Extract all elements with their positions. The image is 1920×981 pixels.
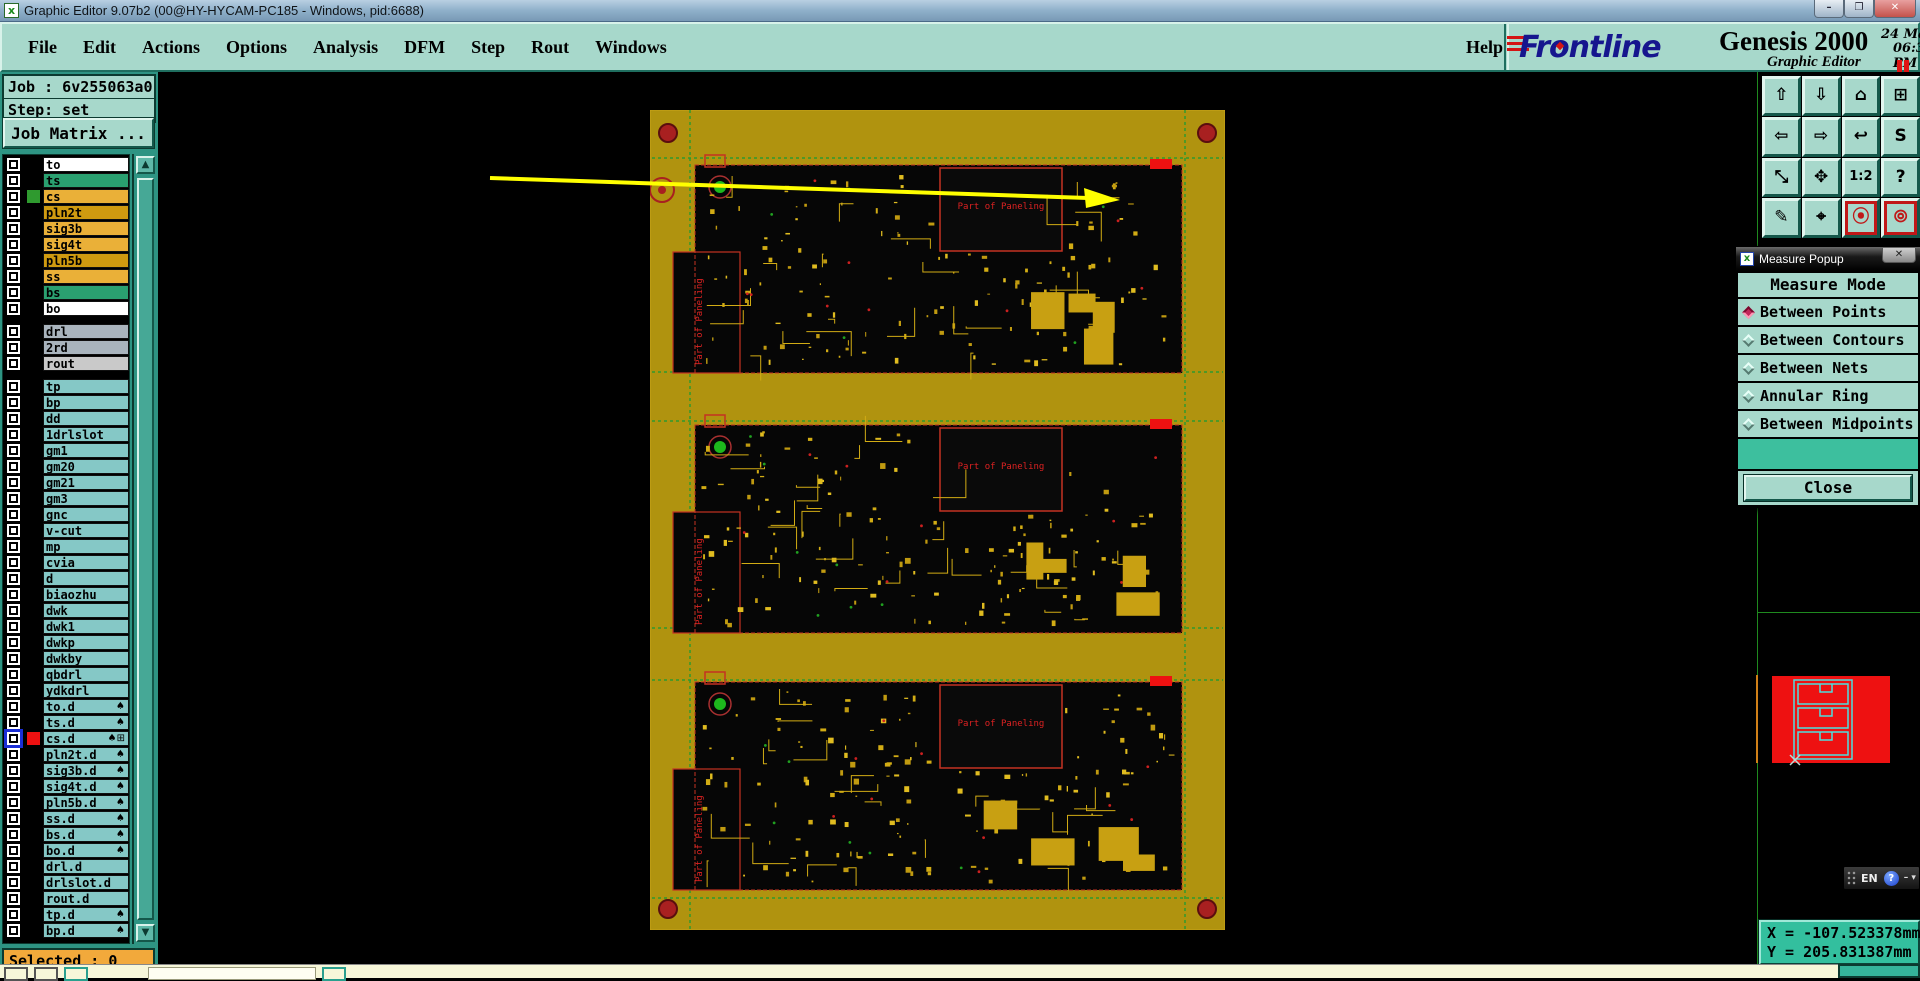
- layer-attr-icons: ♠: [116, 907, 125, 922]
- sidebar: Job : 6v255063a0 Step: set Job Matrix ..…: [0, 72, 158, 978]
- scroll-thumb[interactable]: [137, 178, 154, 920]
- layer-row-dd[interactable]: dd: [5, 411, 129, 427]
- language-label: EN: [1861, 872, 1878, 885]
- layer-row-drl[interactable]: drl: [5, 324, 129, 340]
- layer-name-ts[interactable]: ts: [43, 173, 129, 188]
- zoom-1-2-button[interactable]: 1:2: [1842, 158, 1881, 198]
- layer-row-ydkdrl[interactable]: ydkdrl: [5, 683, 129, 699]
- layer-checkbox[interactable]: [7, 620, 20, 633]
- navigator-border: [1757, 72, 1758, 978]
- pan-up-icon: ⇧: [1774, 85, 1788, 105]
- layer-row-sig4t[interactable]: sig4t: [5, 237, 129, 253]
- zoom-fit-icon: ✥: [1814, 167, 1828, 187]
- layer-name-ydkdrl[interactable]: ydkdrl: [43, 683, 129, 698]
- measure-option-between-midpoints[interactable]: Between Midpoints: [1738, 411, 1918, 439]
- home-view-button[interactable]: ⌂: [1842, 76, 1881, 116]
- layer-checkbox[interactable]: [7, 238, 20, 251]
- measure-mode-options: Between Points Between Contours Between …: [1738, 299, 1918, 439]
- layer-name-gm21[interactable]: gm21: [43, 475, 129, 490]
- job-label: Job : 6v255063a0: [4, 76, 154, 99]
- menu-windows[interactable]: Windows: [595, 37, 667, 58]
- panel-label-vertical: Part of Paneling: [695, 538, 705, 625]
- minimize-lang-icon[interactable]: – ▾: [1904, 874, 1916, 883]
- layer-name-dd[interactable]: dd: [43, 411, 129, 426]
- layer-checkbox[interactable]: [7, 908, 20, 921]
- menu-file[interactable]: File: [28, 37, 57, 58]
- layer-name-drl[interactable]: drl: [43, 324, 129, 339]
- layer-name-biaozhu[interactable]: biaozhu: [43, 587, 129, 602]
- title-bar: x Graphic Editor 9.07b2 (00@HY-HYCAM-PC1…: [0, 0, 1920, 22]
- layer-row-bs.d[interactable]: bs.d ♠: [5, 827, 129, 843]
- layer-row-bo[interactable]: bo: [5, 301, 129, 317]
- layer-checkbox[interactable]: [7, 302, 20, 315]
- zoom-sequence-button[interactable]: S: [1881, 117, 1920, 157]
- radio-diamond-icon[interactable]: [1742, 418, 1755, 431]
- menu-items: File Edit Actions Options Analysis DFM S…: [2, 37, 667, 58]
- layer-row-bp.d[interactable]: bp.d ♠: [5, 923, 129, 939]
- layer-row-mp[interactable]: mp: [5, 539, 129, 555]
- setup-tools-button[interactable]: ✎: [1762, 198, 1801, 238]
- bottom-toolbar: [0, 964, 1838, 978]
- net-compare-icon: ⦾: [1894, 207, 1908, 227]
- layer-row-ts.d[interactable]: ts.d ♠: [5, 715, 129, 731]
- layer-name-d[interactable]: d: [43, 571, 129, 586]
- zoom-fit-button[interactable]: ✥: [1802, 158, 1841, 198]
- setup-tools-icon: ✎: [1774, 207, 1788, 227]
- layer-checkbox[interactable]: [7, 748, 20, 761]
- pan-down-icon: ⇩: [1814, 85, 1828, 105]
- layer-checkbox[interactable]: [7, 396, 20, 409]
- measure-option-annular-ring[interactable]: Annular Ring: [1738, 383, 1918, 411]
- layer-checkbox[interactable]: [7, 357, 20, 370]
- layer-checkbox[interactable]: [7, 556, 20, 569]
- layer-row-sig3b[interactable]: sig3b: [5, 221, 129, 237]
- layer-row-cs.d[interactable]: cs.d ♠⊞: [5, 731, 129, 747]
- coord-x: X = -107.523378mm: [1767, 924, 1918, 943]
- layer-checkbox[interactable]: [7, 796, 20, 809]
- layer-name-tp[interactable]: tp: [43, 379, 129, 394]
- measure-close-button[interactable]: Close: [1744, 475, 1912, 501]
- layer-checkbox[interactable]: [7, 412, 20, 425]
- coord-y: Y = 205.831387mm: [1767, 943, 1918, 962]
- layer-name-v-cut[interactable]: v-cut: [43, 523, 129, 538]
- layer-row-pln2t.d[interactable]: pln2t.d ♠: [5, 747, 129, 763]
- layer-attr-icons: ♠: [116, 763, 125, 778]
- bottom-tool-3[interactable]: [64, 967, 88, 981]
- layer-row-bs[interactable]: bs: [5, 285, 129, 301]
- layer-row-2rd[interactable]: 2rd: [5, 340, 129, 356]
- layer-row-gm20[interactable]: gm20: [5, 459, 129, 475]
- layer-name-dwk1[interactable]: dwk1: [43, 619, 129, 634]
- layer-name-drlslot.d[interactable]: drlslot.d: [43, 875, 129, 890]
- layer-row-gm1[interactable]: gm1: [5, 443, 129, 459]
- layer-row-gnc[interactable]: gnc: [5, 507, 129, 523]
- board-2: Part of PanelingPart of Paneling: [673, 415, 1182, 633]
- layer-row-biaozhu[interactable]: biaozhu: [5, 587, 129, 603]
- measure-probe-icon: ⌖: [1816, 207, 1826, 227]
- panel-label: Part of Paneling: [958, 719, 1045, 729]
- layer-checkbox[interactable]: [7, 812, 20, 825]
- layer-checkbox[interactable]: [7, 460, 20, 473]
- layer-checkbox[interactable]: [7, 325, 20, 338]
- layer-checkbox[interactable]: [7, 604, 20, 617]
- layer-row-rout.d[interactable]: rout.d: [5, 891, 129, 907]
- coordinates-readout: X = -107.523378mm Y = 205.831387mm: [1759, 920, 1920, 965]
- layer-list: to ts cs pln2t sig3b sig4t pln5b: [2, 154, 130, 944]
- layer-name-cvia[interactable]: cvia: [43, 555, 129, 570]
- layer-checkbox[interactable]: [7, 860, 20, 873]
- layer-checkbox[interactable]: [7, 892, 20, 905]
- layer-checkbox[interactable]: [7, 254, 20, 267]
- command-field[interactable]: [148, 967, 316, 980]
- pan-left-button[interactable]: ⇦: [1762, 117, 1801, 157]
- layer-row-tp[interactable]: tp: [5, 379, 129, 395]
- radio-diamond-icon[interactable]: [1742, 390, 1755, 403]
- layer-checkbox[interactable]: [7, 222, 20, 235]
- board-3: Part of PanelingPart of Paneling: [673, 672, 1182, 891]
- layer-name-pln2t[interactable]: pln2t: [43, 205, 129, 220]
- product-name: Genesis 2000: [1719, 26, 1868, 57]
- bottom-tool-4[interactable]: [322, 967, 346, 981]
- layer-row-drl.d[interactable]: drl.d: [5, 859, 129, 875]
- layer-row-ts[interactable]: ts: [5, 173, 129, 189]
- menu-help[interactable]: Help: [1466, 37, 1503, 58]
- layer-row-v-cut[interactable]: v-cut: [5, 523, 129, 539]
- layer-checkbox[interactable]: [7, 684, 20, 697]
- main-canvas[interactable]: Part of PanelingPart of PanelingPart of …: [158, 72, 1758, 964]
- layer-row-ss[interactable]: ss: [5, 269, 129, 285]
- layer-name-bo[interactable]: bo: [43, 301, 129, 316]
- restore-button[interactable]: ❐: [1844, 0, 1874, 18]
- panel-label: Part of Paneling: [958, 462, 1045, 472]
- measure-option-between-points[interactable]: Between Points: [1738, 299, 1918, 327]
- menu-analysis[interactable]: Analysis: [313, 37, 378, 58]
- bottom-tool-1[interactable]: [4, 967, 28, 981]
- language-bar[interactable]: EN ? – ▾: [1843, 866, 1920, 890]
- layer-attr-icons: ♠⊞: [108, 731, 125, 746]
- layer-row-bp[interactable]: bp: [5, 395, 129, 411]
- layer-checkbox[interactable]: [7, 844, 20, 857]
- layer-row-sig4t.d[interactable]: sig4t.d ♠: [5, 779, 129, 795]
- menu-options[interactable]: Options: [226, 37, 287, 58]
- layer-row-to[interactable]: to: [5, 157, 129, 173]
- layer-attr-icons: ♠: [116, 779, 125, 794]
- layer-checkbox[interactable]: [7, 668, 20, 681]
- menu-actions[interactable]: Actions: [142, 37, 200, 58]
- layer-checkbox[interactable]: [7, 652, 20, 665]
- menu-rout[interactable]: Rout: [531, 37, 569, 58]
- scroll-down-icon[interactable]: ▼: [136, 924, 155, 942]
- layer-attr-icons: ♠: [116, 827, 125, 842]
- layer-row-pln5b.d[interactable]: pln5b.d ♠: [5, 795, 129, 811]
- window-xy-icon: ⊞: [1894, 85, 1908, 105]
- zoom-previous-button[interactable]: ↩: [1842, 117, 1881, 157]
- layer-checkbox[interactable]: [7, 508, 20, 521]
- layer-checkbox[interactable]: [7, 174, 20, 187]
- help-tool-button[interactable]: ?: [1881, 158, 1920, 198]
- frontline-logo: Frontline: [1519, 30, 1661, 65]
- layer-row-pln2t[interactable]: pln2t: [5, 205, 129, 221]
- layer-attr-icons: ♠: [116, 795, 125, 810]
- measure-mode-header: Measure Mode: [1738, 273, 1918, 299]
- layer-checkbox[interactable]: [7, 780, 20, 793]
- layer-checkbox[interactable]: [7, 190, 20, 203]
- layer-row-1drlslot[interactable]: 1drlslot: [5, 427, 129, 443]
- layer-checkbox[interactable]: [7, 572, 20, 585]
- zoom-out-icon: ⤡: [1775, 167, 1789, 187]
- layer-checkbox[interactable]: [7, 158, 20, 171]
- zoom-out-button[interactable]: ⤡: [1762, 158, 1801, 198]
- pan-down-button[interactable]: ⇩: [1802, 76, 1841, 116]
- layer-name-1drlslot[interactable]: 1drlslot: [43, 427, 129, 442]
- layer-name-ss[interactable]: ss: [43, 269, 129, 284]
- layer-checkbox[interactable]: [7, 700, 20, 713]
- panel-label-vertical: Part of Paneling: [695, 278, 705, 365]
- layer-checkbox[interactable]: [7, 588, 20, 601]
- layer-name-dwkp[interactable]: dwkp: [43, 635, 129, 650]
- layer-row-rout[interactable]: rout: [5, 356, 129, 372]
- net-highlight-button[interactable]: ⦿: [1842, 198, 1881, 238]
- layer-checkbox[interactable]: [7, 828, 20, 841]
- brand-panel: Frontline Genesis 2000 Graphic Editor 24…: [1509, 24, 1918, 70]
- layer-name-sig4t[interactable]: sig4t: [43, 237, 129, 252]
- app-icon: x: [4, 3, 19, 18]
- layer-row-drlslot.d[interactable]: drlslot.d: [5, 875, 129, 891]
- layer-name-to[interactable]: to: [43, 157, 129, 172]
- layer-name-bp[interactable]: bp: [43, 395, 129, 410]
- layer-row-dwk[interactable]: dwk: [5, 603, 129, 619]
- layer-name-bs[interactable]: bs: [43, 285, 129, 300]
- pan-left-icon: ⇦: [1774, 126, 1788, 146]
- net-highlight-icon: ⦿: [1852, 207, 1869, 227]
- radio-diamond-icon[interactable]: [1742, 306, 1755, 319]
- grip-icon[interactable]: [1847, 871, 1857, 885]
- radio-diamond-icon[interactable]: [1742, 362, 1755, 375]
- layer-row-gm21[interactable]: gm21: [5, 475, 129, 491]
- layer-checkbox[interactable]: [7, 924, 20, 937]
- layer-row-tp.d[interactable]: tp.d ♠: [5, 907, 129, 923]
- layer-checkbox[interactable]: [7, 524, 20, 537]
- menu-dfm[interactable]: DFM: [404, 37, 445, 58]
- layer-row-dwkp[interactable]: dwkp: [5, 635, 129, 651]
- layer-name-drl.d[interactable]: drl.d: [43, 859, 129, 874]
- layer-row-qbdrl[interactable]: qbdrl: [5, 667, 129, 683]
- bottom-tool-2[interactable]: [34, 967, 58, 981]
- window-xy-button[interactable]: ⊞: [1881, 76, 1920, 116]
- measure-popup-filler: [1738, 439, 1918, 471]
- layer-name-gm20[interactable]: gm20: [43, 459, 129, 474]
- layer-name-pln5b[interactable]: pln5b: [43, 253, 129, 268]
- measure-arrow: [488, 172, 1128, 212]
- layer-checkbox[interactable]: [7, 380, 20, 393]
- window-title: Graphic Editor 9.07b2 (00@HY-HYCAM-PC185…: [24, 3, 424, 18]
- job-info-box: Job : 6v255063a0 Step: set: [2, 74, 156, 123]
- radio-diamond-icon[interactable]: [1742, 334, 1755, 347]
- layer-row-dwk1[interactable]: dwk1: [5, 619, 129, 635]
- pause-icon[interactable]: [1897, 57, 1911, 69]
- layer-checkbox[interactable]: [7, 764, 20, 777]
- layer-name-gm3[interactable]: gm3: [43, 491, 129, 506]
- layer-name-sig3b[interactable]: sig3b: [43, 221, 129, 236]
- layer-row-pln5b[interactable]: pln5b: [5, 253, 129, 269]
- pcb-panel: Part of PanelingPart of PanelingPart of …: [650, 110, 1225, 930]
- view-toolbar: ⇧ ⇩ ⌂ ⊞ ⇦ ⇨ ↩ S ⤡ ✥ 1:2 ? ✎ ⌖ ⦿ ⦾: [1762, 76, 1920, 238]
- layer-checkbox[interactable]: [7, 876, 20, 889]
- zoom-sequence-icon: S: [1895, 126, 1907, 146]
- measure-probe-button[interactable]: ⌖: [1802, 198, 1841, 238]
- layer-scrollbar: ▲ ▼: [132, 154, 156, 944]
- pan-right-icon: ⇨: [1814, 126, 1828, 146]
- layer-row-cs[interactable]: cs: [5, 189, 129, 205]
- date-label: 24 May 2021: [1881, 27, 1920, 42]
- layer-attr-icons: ♠: [116, 923, 125, 938]
- layer-checkbox[interactable]: [7, 540, 20, 553]
- help-tool-icon: ?: [1896, 167, 1906, 187]
- layer-row-ss.d[interactable]: ss.d ♠: [5, 811, 129, 827]
- layer-checkbox[interactable]: [7, 286, 20, 299]
- menu-step[interactable]: Step: [471, 37, 505, 58]
- minimize-button[interactable]: –: [1814, 0, 1844, 18]
- layer-row-gm3[interactable]: gm3: [5, 491, 129, 507]
- layer-checkbox[interactable]: [7, 716, 20, 729]
- layer-name-gm1[interactable]: gm1: [43, 443, 129, 458]
- layer-checkbox[interactable]: [7, 492, 20, 505]
- navigator-thumbnail[interactable]: [1758, 660, 1920, 775]
- layer-row-sig3b.d[interactable]: sig3b.d ♠: [5, 763, 129, 779]
- layer-checkbox[interactable]: [7, 444, 20, 457]
- layer-name-2rd[interactable]: 2rd: [43, 340, 129, 355]
- pan-up-button[interactable]: ⇧: [1762, 76, 1801, 116]
- measure-popup-titlebar[interactable]: x Measure Popup ✕: [1736, 247, 1920, 271]
- layer-row-dwkby[interactable]: dwkby: [5, 651, 129, 667]
- layer-attr-icons: ♠: [116, 715, 125, 730]
- layer-checkbox[interactable]: [7, 428, 20, 441]
- layer-checkbox[interactable]: [7, 476, 20, 489]
- zoom-previous-icon: ↩: [1854, 126, 1868, 146]
- menu-bar: File Edit Actions Options Analysis DFM S…: [0, 22, 1920, 72]
- zoom-1-2-icon: 1:2: [1849, 169, 1872, 184]
- help-circle-icon[interactable]: ?: [1884, 871, 1899, 886]
- product-subtitle: Graphic Editor: [1767, 54, 1861, 71]
- layer-color-chip: [27, 190, 40, 203]
- layer-row-d[interactable]: d: [5, 571, 129, 587]
- layer-name-cs[interactable]: cs: [43, 189, 129, 204]
- navigator-divider: [1757, 612, 1920, 613]
- layer-attr-icons: ♠: [116, 699, 125, 714]
- layer-color-chip: [27, 732, 40, 745]
- measure-popup-title: Measure Popup: [1759, 252, 1882, 266]
- layer-name-qbdrl[interactable]: qbdrl: [43, 667, 129, 682]
- layer-checkbox[interactable]: [7, 270, 20, 283]
- menu-edit[interactable]: Edit: [83, 37, 116, 58]
- layer-checkbox[interactable]: [7, 732, 20, 745]
- layer-name-dwk[interactable]: dwk: [43, 603, 129, 618]
- job-matrix-button[interactable]: Job Matrix ...: [3, 118, 154, 148]
- layer-attr-icons: ♠: [116, 747, 125, 762]
- layer-name-gnc[interactable]: gnc: [43, 507, 129, 522]
- bottom-right-panel: [1838, 964, 1920, 978]
- measure-option-between-contours[interactable]: Between Contours: [1738, 327, 1918, 355]
- layer-name-mp[interactable]: mp: [43, 539, 129, 554]
- measure-popup-close-icon[interactable]: ✕: [1882, 248, 1916, 263]
- layer-row-to.d[interactable]: to.d ♠: [5, 699, 129, 715]
- layer-checkbox[interactable]: [7, 341, 20, 354]
- thumbnail-viewport: [1772, 676, 1890, 763]
- layer-row-bo.d[interactable]: bo.d ♠: [5, 843, 129, 859]
- layer-checkbox[interactable]: [7, 206, 20, 219]
- layer-checkbox[interactable]: [7, 636, 20, 649]
- measure-popup-window: x Measure Popup ✕ Measure Mode Between P…: [1735, 246, 1920, 508]
- measure-popup-icon: x: [1740, 252, 1754, 266]
- scroll-up-icon[interactable]: ▲: [136, 156, 155, 174]
- home-view-icon: ⌂: [1855, 85, 1867, 105]
- layer-name-rout.d[interactable]: rout.d: [43, 891, 129, 906]
- layer-attr-icons: ♠: [116, 811, 125, 826]
- layer-name-rout[interactable]: rout: [43, 356, 129, 371]
- pan-right-button[interactable]: ⇨: [1802, 117, 1841, 157]
- measure-option-between-nets[interactable]: Between Nets: [1738, 355, 1918, 383]
- layer-row-cvia[interactable]: cvia: [5, 555, 129, 571]
- net-compare-button[interactable]: ⦾: [1881, 198, 1920, 238]
- close-button[interactable]: ✕: [1874, 0, 1916, 18]
- layer-attr-icons: ♠: [116, 843, 125, 858]
- layer-name-dwkby[interactable]: dwkby: [43, 651, 129, 666]
